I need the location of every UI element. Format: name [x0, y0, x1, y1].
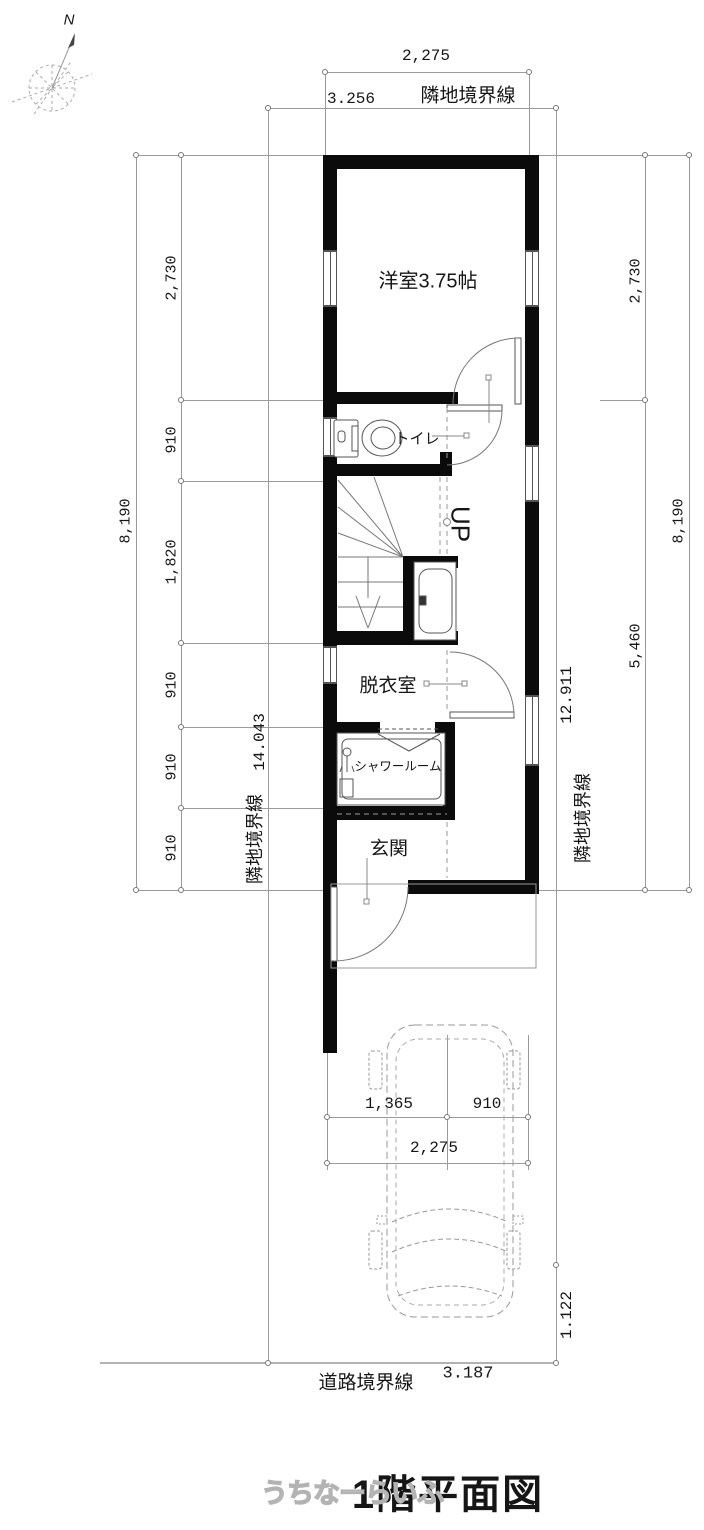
boundary-label-road: 道路境界線 — [318, 1368, 413, 1395]
dimension-line — [136, 890, 325, 891]
dimension-marker — [553, 1360, 559, 1366]
dimension-line — [325, 72, 326, 155]
dim-left-outer: 8,190 — [118, 498, 135, 543]
wall-segment — [408, 880, 539, 894]
dimension-marker — [178, 640, 184, 646]
dim-bottom-chain-1: 1,365 — [365, 1095, 413, 1113]
boundary-label-left: 隣地境界線 — [241, 794, 267, 884]
dimension-marker — [133, 152, 139, 158]
dimension-line — [689, 155, 690, 890]
window-symbol — [323, 250, 337, 307]
dimension-line — [529, 72, 530, 155]
wall-segment — [323, 806, 455, 820]
dimension-marker — [265, 105, 271, 111]
window-symbol — [525, 250, 539, 307]
dimension-line — [136, 155, 137, 890]
dimension-marker — [178, 152, 184, 158]
dimension-marker — [178, 724, 184, 730]
room-label-shower: シャワールーム — [354, 756, 441, 775]
north-label: N — [64, 12, 75, 29]
wall-segment — [323, 722, 380, 736]
dimension-marker — [133, 887, 139, 893]
dimension-marker — [444, 1114, 450, 1120]
dimension-marker — [525, 1160, 531, 1166]
dim-setback: 1.122 — [558, 1291, 576, 1339]
dim-left-chain-2: 910 — [164, 426, 181, 453]
dim-road-boundary-length: 3.187 — [442, 1365, 493, 1384]
room-label-entrance: 玄関 — [370, 834, 408, 861]
dimension-marker — [178, 805, 184, 811]
dimension-marker — [525, 1114, 531, 1120]
window-symbol — [525, 445, 539, 502]
stairs-icon — [338, 477, 403, 628]
dim-left-chain-1: 2,730 — [164, 255, 181, 300]
dimension-marker — [686, 152, 692, 158]
dim-left-chain-5: 910 — [164, 753, 181, 780]
dim-left-chain-4: 910 — [164, 671, 181, 698]
wall-segment — [323, 155, 539, 169]
dim-left-chain-3: 1,820 — [164, 539, 181, 584]
dim-right-outer: 8,190 — [671, 498, 688, 543]
dimension-marker — [642, 152, 648, 158]
stairs-up-label: UP — [445, 506, 476, 542]
dimension-line — [539, 155, 689, 156]
dimension-marker — [526, 69, 532, 75]
dimension-marker — [178, 397, 184, 403]
dim-top-width: 2,275 — [402, 47, 450, 65]
dimension-line — [600, 400, 648, 401]
room-label-toilet: トイレ — [394, 428, 439, 449]
dim-right-chain-2: 5,460 — [628, 623, 645, 668]
dimension-marker — [178, 887, 184, 893]
wall-segment — [440, 452, 452, 476]
porch-step — [331, 884, 536, 968]
dim-top-boundary-length: 3.256 — [327, 90, 375, 108]
dimension-line — [327, 1035, 328, 1170]
watermark: うちなーらいふ — [261, 1472, 443, 1511]
dimension-marker — [553, 105, 559, 111]
boundary-label-top: 隣地境界線 — [420, 81, 515, 108]
dimension-marker — [324, 1160, 330, 1166]
dimension-marker — [324, 1114, 330, 1120]
dim-right-chain-1: 2,730 — [628, 258, 645, 303]
room-label-main: 洋室3.75帖 — [379, 265, 478, 294]
dimension-line — [181, 643, 323, 644]
compass-icon — [12, 33, 92, 114]
toilet-fixture-icon — [334, 420, 402, 457]
dimension-marker — [642, 397, 648, 403]
window-symbol — [323, 646, 337, 684]
wall-segment — [403, 556, 458, 568]
dim-left-chain-6: 910 — [164, 834, 181, 861]
dimension-line — [327, 1117, 528, 1118]
dimension-line — [528, 1035, 529, 1170]
dimension-line — [181, 481, 323, 482]
dimension-line — [325, 72, 529, 73]
window-symbol — [323, 417, 337, 457]
car-icon — [369, 1025, 523, 1317]
dimension-line — [136, 155, 325, 156]
dim-left-boundary-length: 14.043 — [251, 713, 269, 771]
dimension-line — [556, 108, 557, 1363]
dimension-line — [539, 890, 689, 891]
dimension-line — [181, 400, 323, 401]
wall-segment — [435, 722, 455, 736]
dimension-marker — [686, 887, 692, 893]
window-symbol — [525, 695, 539, 766]
dim-right-boundary-length: 12.911 — [558, 666, 576, 724]
dimension-line — [645, 155, 646, 890]
dimension-marker — [642, 887, 648, 893]
wall-segment — [323, 464, 452, 476]
dimension-marker — [178, 478, 184, 484]
dim-bottom-width: 2,275 — [410, 1139, 458, 1157]
wall-segment — [323, 392, 458, 404]
dimension-marker — [553, 1262, 559, 1268]
dimension-marker — [322, 69, 328, 75]
dimension-line — [268, 108, 556, 109]
washbasin-icon — [414, 562, 456, 640]
dimension-line — [327, 1163, 528, 1164]
boundary-label-right: 隣地境界線 — [569, 773, 595, 863]
room-label-dressing: 脱衣室 — [359, 671, 416, 698]
dim-bottom-chain-2: 910 — [473, 1095, 502, 1113]
dimension-line — [181, 155, 182, 890]
wall-segment — [323, 631, 458, 645]
floor-plan: N 2,275 3.256 隣地境界線 洋室3.75帖 トイレ UP 脱衣室 シ… — [0, 0, 704, 1530]
dimension-marker — [265, 1360, 271, 1366]
